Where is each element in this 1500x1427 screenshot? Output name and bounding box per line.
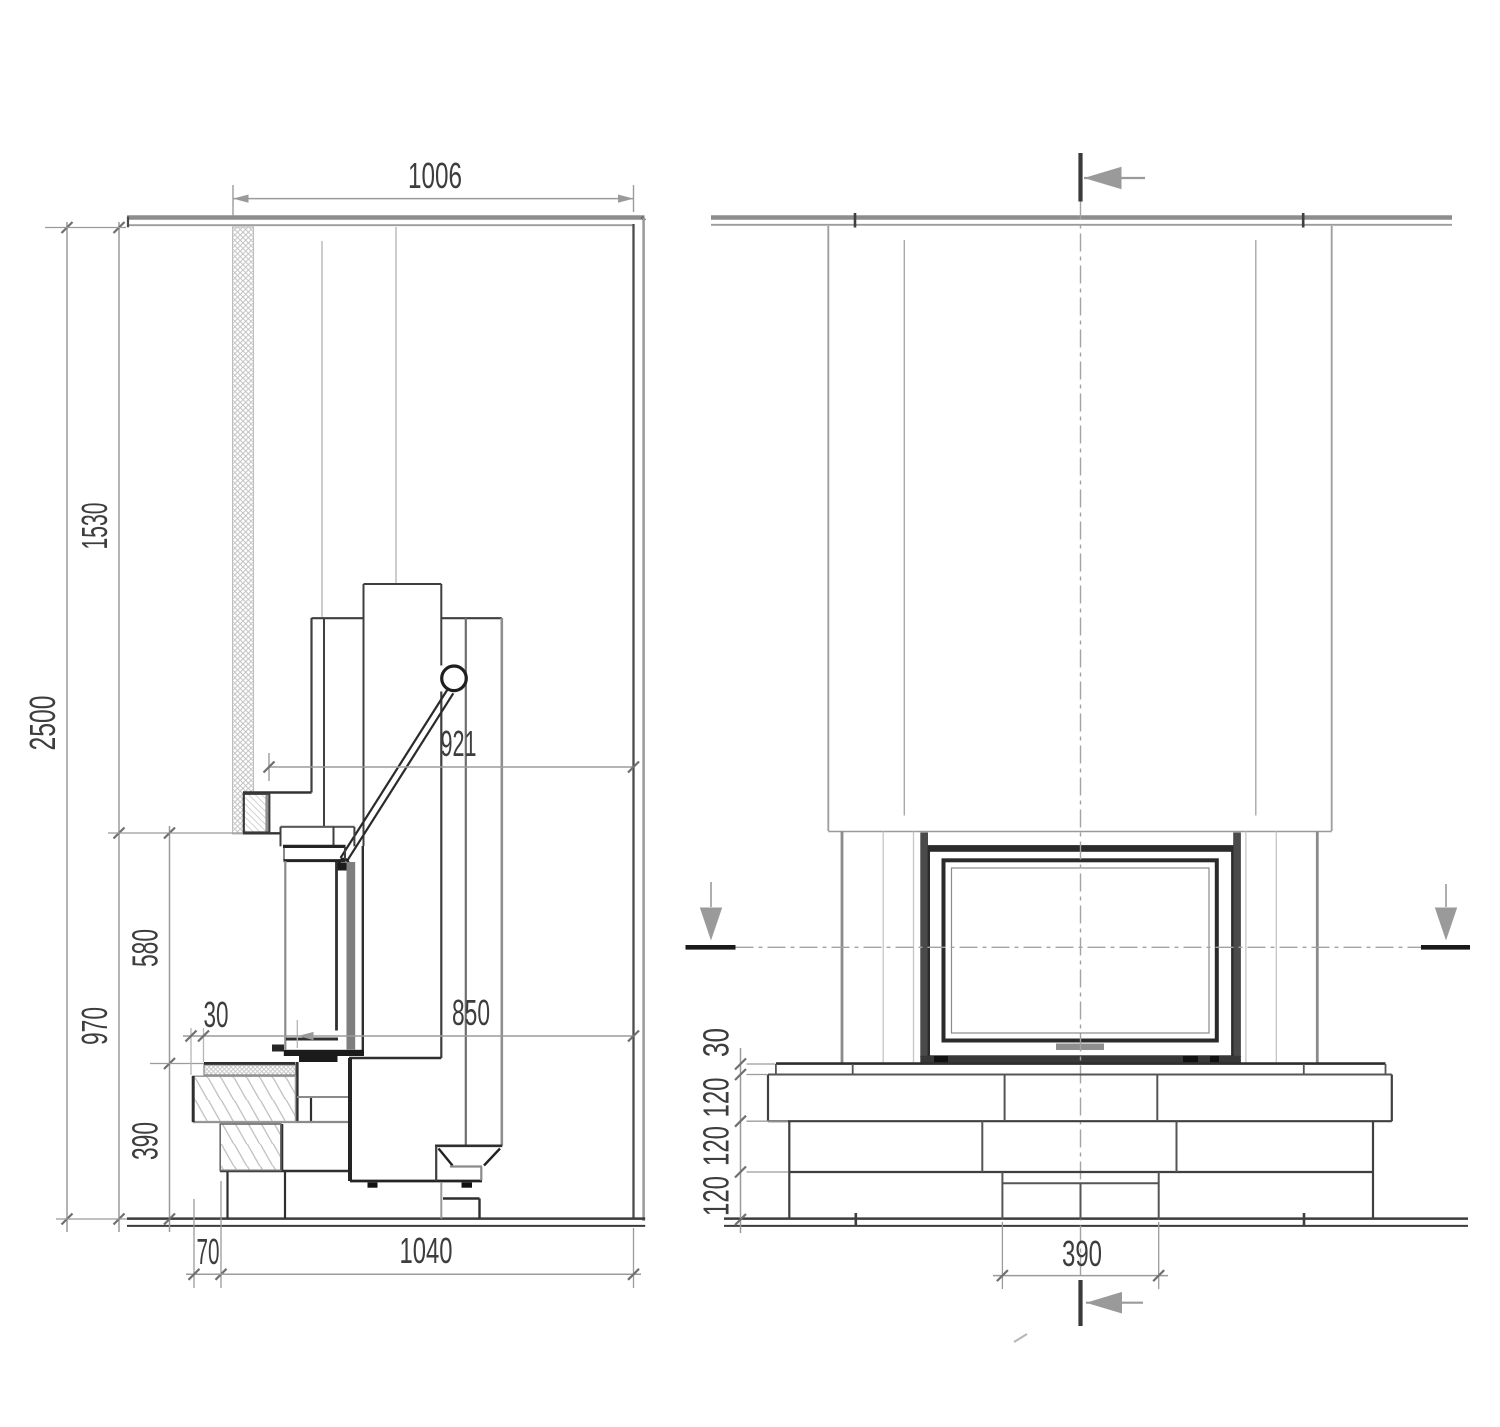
- svg-text:390: 390: [125, 1122, 166, 1160]
- svg-text:390: 390: [1062, 1233, 1102, 1274]
- svg-text:120: 120: [696, 1126, 737, 1166]
- svg-text:2500: 2500: [22, 696, 63, 751]
- svg-text:1040: 1040: [400, 1230, 453, 1271]
- svg-text:120: 120: [696, 1176, 737, 1216]
- svg-text:850: 850: [452, 992, 490, 1033]
- svg-text:1006: 1006: [408, 155, 462, 196]
- svg-text:120: 120: [696, 1078, 737, 1118]
- svg-text:30: 30: [204, 994, 229, 1035]
- svg-text:30: 30: [696, 1028, 737, 1057]
- svg-text:1530: 1530: [74, 503, 115, 550]
- svg-text:921: 921: [441, 723, 477, 764]
- svg-text:970: 970: [74, 1007, 115, 1045]
- svg-text:580: 580: [125, 929, 166, 967]
- svg-text:70: 70: [197, 1231, 220, 1272]
